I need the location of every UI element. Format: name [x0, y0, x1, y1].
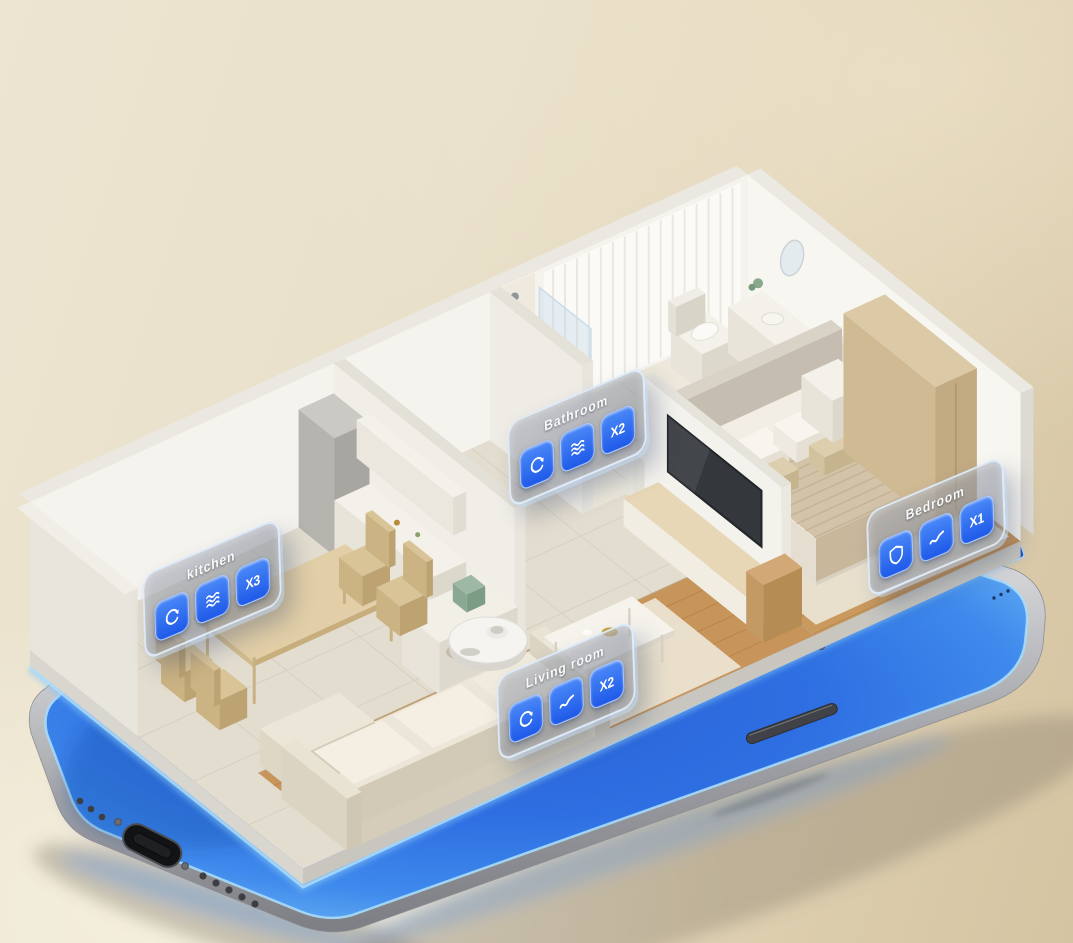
mop-waves-icon [560, 420, 595, 474]
promo-render: { "scene": { "description": "3D cutaway … [0, 0, 1073, 943]
vacuum-swirl-icon [508, 691, 543, 745]
vacuum-swirl-icon [154, 589, 189, 643]
vacuum-swirl-icon [519, 437, 554, 491]
mop-waves-icon [195, 572, 230, 626]
route-wave-icon [549, 674, 584, 728]
route-wave-icon [919, 510, 954, 564]
multiplier-badge: X1 [959, 493, 994, 547]
shield-icon [878, 527, 913, 581]
multiplier-badge: X2 [589, 657, 624, 711]
multiplier-badge: X3 [235, 555, 270, 609]
multiplier-badge: X2 [600, 403, 635, 457]
